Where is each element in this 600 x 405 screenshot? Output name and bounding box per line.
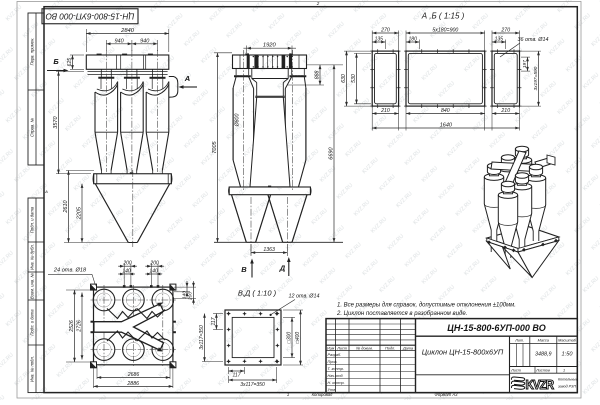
svg-text:140: 140	[122, 268, 131, 274]
svg-text:Б: Б	[53, 57, 59, 66]
svg-text:Подп. и дата: Подп. и дата	[30, 206, 35, 233]
svg-text:Пров.: Пров.	[328, 360, 338, 364]
svg-text:135: 135	[495, 37, 504, 43]
svg-text:1: 1	[287, 392, 289, 397]
svg-text:Утв.: Утв.	[328, 388, 337, 392]
svg-text:Нач.отд.: Нач.отд.	[328, 374, 344, 378]
svg-text:2: 2	[316, 1, 320, 6]
svg-text:Д: Д	[279, 264, 286, 273]
svg-text:210: 210	[500, 108, 510, 114]
svg-text:Подп. и дата: Подп. и дата	[30, 309, 35, 336]
svg-text:2205: 2205	[77, 206, 83, 220]
svg-text:Ø800: Ø800	[235, 114, 241, 128]
svg-text:1. Все размеры для справок, до: 1. Все размеры для справок, допустимые о…	[337, 303, 516, 309]
svg-text:Инв. № подл.: Инв. № подл.	[30, 356, 35, 382]
svg-text:888: 888	[315, 71, 321, 80]
svg-text:180: 180	[409, 37, 418, 43]
svg-text:24 отв. Ø18: 24 отв. Ø18	[53, 268, 87, 274]
svg-text:ЦН-15-800-6УП-000 ВО: ЦН-15-800-6УП-000 ВО	[45, 11, 134, 20]
svg-text:Подп.: Подп.	[385, 346, 395, 350]
svg-text:Дата: Дата	[402, 346, 413, 350]
svg-text:завод РЗП: завод РЗП	[557, 385, 576, 389]
svg-text:2526: 2526	[69, 320, 75, 333]
svg-text:1363: 1363	[263, 247, 275, 253]
svg-text:2840: 2840	[120, 28, 135, 34]
svg-text:2. Циклон поставляется в разоб: 2. Циклон поставляется в разобранном вид…	[336, 311, 467, 317]
svg-text:Циклон ЦН-15-800х6УП: Циклон ЦН-15-800х6УП	[422, 348, 504, 357]
svg-text:940: 940	[115, 38, 125, 44]
svg-text:117: 117	[211, 317, 217, 325]
svg-text:140: 140	[182, 291, 188, 299]
svg-text:Листов: Листов	[535, 368, 550, 372]
svg-text:Масштаб: Масштаб	[558, 339, 577, 343]
svg-text:3488,9: 3488,9	[535, 352, 552, 358]
svg-text:2726: 2726	[77, 320, 83, 333]
svg-text:200: 200	[187, 292, 193, 301]
svg-text:625: 625	[67, 58, 73, 67]
svg-text:840: 840	[441, 108, 450, 114]
svg-text:Лист: Лист	[510, 368, 521, 372]
svg-text:А: А	[184, 74, 190, 83]
svg-text:2610: 2610	[63, 199, 69, 213]
svg-text:2886: 2886	[126, 381, 139, 387]
svg-text:Лист: Лист	[336, 346, 347, 350]
svg-text:7005: 7005	[212, 140, 218, 153]
svg-text:Взам. инв. №: Взам. инв. №	[30, 273, 35, 299]
svg-text:940: 940	[140, 38, 150, 44]
svg-text:3х117=350: 3х117=350	[240, 382, 265, 388]
svg-text:530: 530	[351, 74, 357, 83]
svg-text:Лит.: Лит.	[514, 339, 524, 343]
svg-text:В,Д ( 1:10 ): В,Д ( 1:10 )	[238, 289, 277, 298]
svg-text:3х117=350: 3х117=350	[199, 325, 205, 350]
svg-text:KVZR: KVZR	[526, 378, 555, 393]
svg-text:Перв. примен.: Перв. примен.	[30, 38, 35, 66]
svg-text:□300: □300	[287, 332, 293, 344]
svg-text:117: 117	[233, 373, 241, 379]
svg-text:5х180=900: 5х180=900	[432, 28, 458, 34]
svg-text:Н. контр.: Н. контр.	[328, 381, 345, 385]
svg-text:197: 197	[522, 60, 528, 68]
svg-text:Т. контр.: Т. контр.	[328, 367, 344, 371]
svg-text:6690: 6690	[329, 147, 335, 160]
svg-text:630: 630	[341, 74, 347, 83]
svg-text:□400: □400	[295, 332, 301, 344]
svg-text:А: А	[44, 189, 48, 194]
svg-text:Инв. № дубл.: Инв. № дубл.	[30, 244, 35, 270]
svg-text:1920: 1920	[263, 43, 277, 49]
svg-text:12 отв. Ø14: 12 отв. Ø14	[289, 294, 320, 300]
svg-text:2686: 2686	[127, 372, 140, 378]
svg-text:Справ. №: Справ. №	[30, 118, 35, 137]
svg-text:1:50: 1:50	[562, 352, 574, 358]
svg-text:140: 140	[149, 268, 158, 274]
svg-text:200: 200	[122, 261, 132, 267]
svg-text:№ докум.: № докум.	[356, 346, 373, 350]
svg-text:135: 135	[375, 37, 384, 43]
svg-text:Котельный: Котельный	[558, 378, 578, 382]
svg-text:ЦН-15-800-6УП-000 ВО: ЦН-15-800-6УП-000 ВО	[447, 323, 545, 333]
svg-text:270: 270	[500, 28, 510, 34]
svg-text:1: 1	[563, 368, 565, 372]
svg-text:Изм: Изм	[327, 346, 334, 350]
svg-text:А ,Б ( 1:15 ): А ,Б ( 1:15 )	[421, 12, 465, 21]
svg-text:В: В	[241, 265, 247, 274]
svg-text:3570: 3570	[53, 116, 59, 129]
svg-text:200: 200	[149, 261, 159, 267]
svg-text:1640: 1640	[440, 123, 453, 129]
svg-text:3х197=590: 3х197=590	[533, 66, 539, 90]
svg-text:36 отв. Ø14: 36 отв. Ø14	[518, 37, 549, 43]
svg-text:Масса: Масса	[538, 339, 549, 343]
svg-text:210: 210	[380, 108, 390, 114]
svg-text:270: 270	[380, 28, 390, 34]
svg-text:Разраб.: Разраб.	[328, 353, 342, 357]
